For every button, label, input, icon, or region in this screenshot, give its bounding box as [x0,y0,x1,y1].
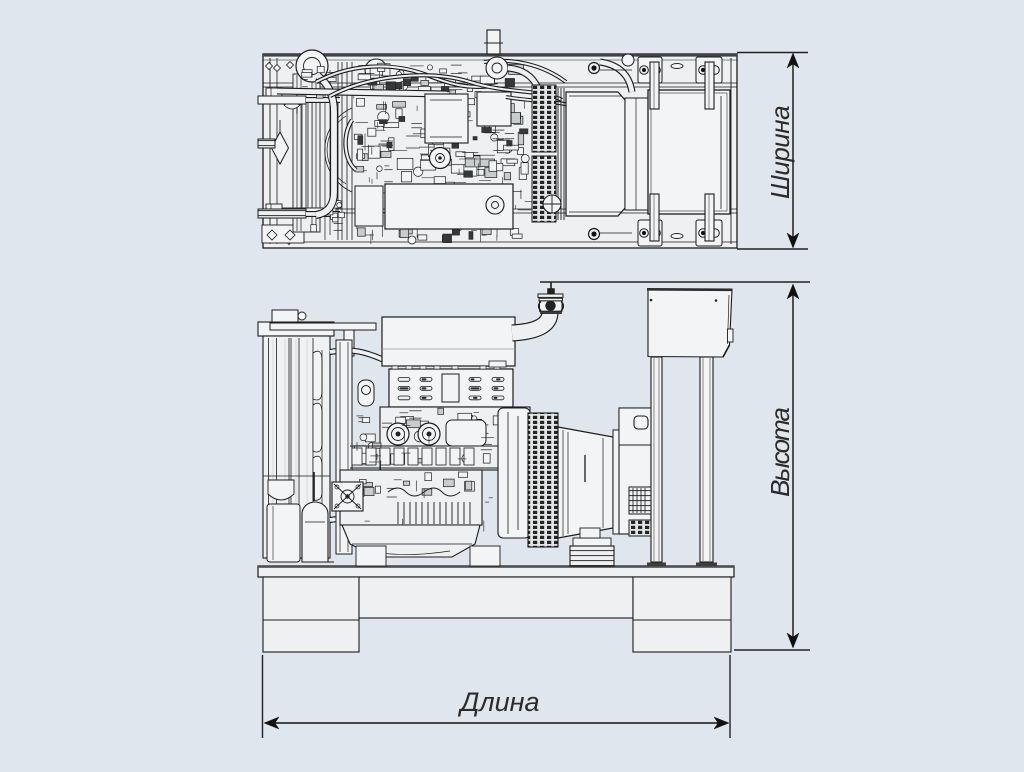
svg-text:Длина: Длина [457,687,539,717]
svg-text:Ширина: Ширина [765,106,795,199]
svg-text:Высота: Высота [765,408,795,497]
